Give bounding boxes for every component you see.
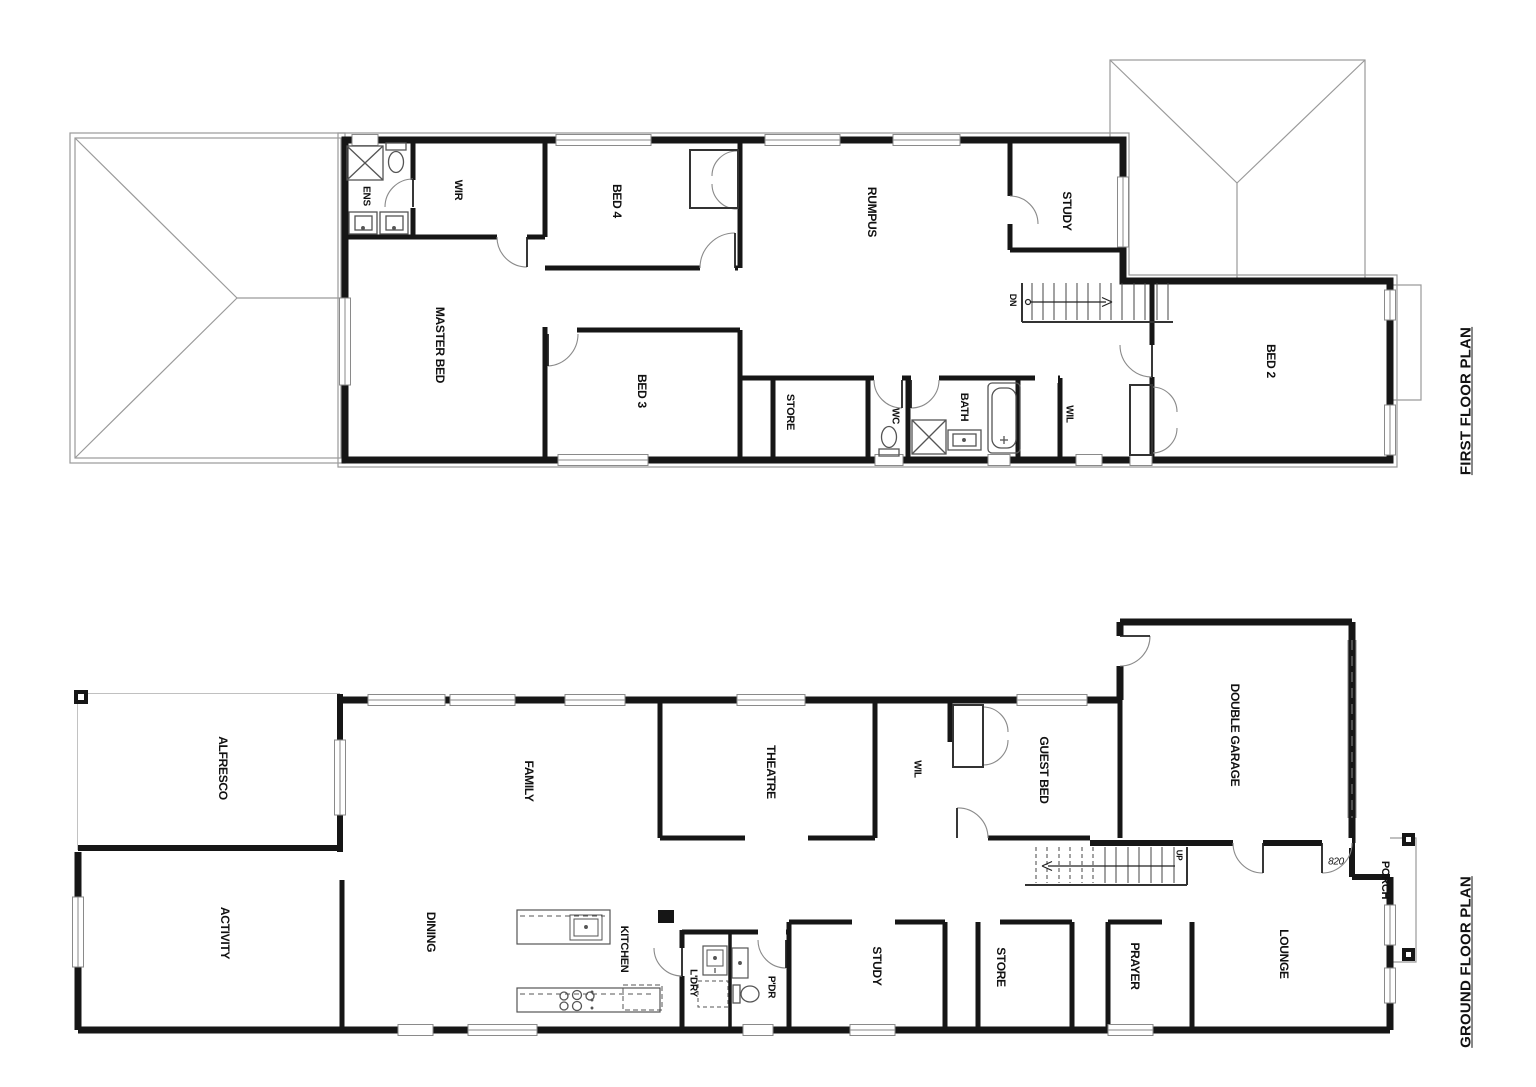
floorplan-linework xyxy=(0,0,1536,1087)
floor-plan-canvas: FIRST FLOOR PLAN GROUND FLOOR PLAN ENSWI… xyxy=(0,0,1536,1087)
